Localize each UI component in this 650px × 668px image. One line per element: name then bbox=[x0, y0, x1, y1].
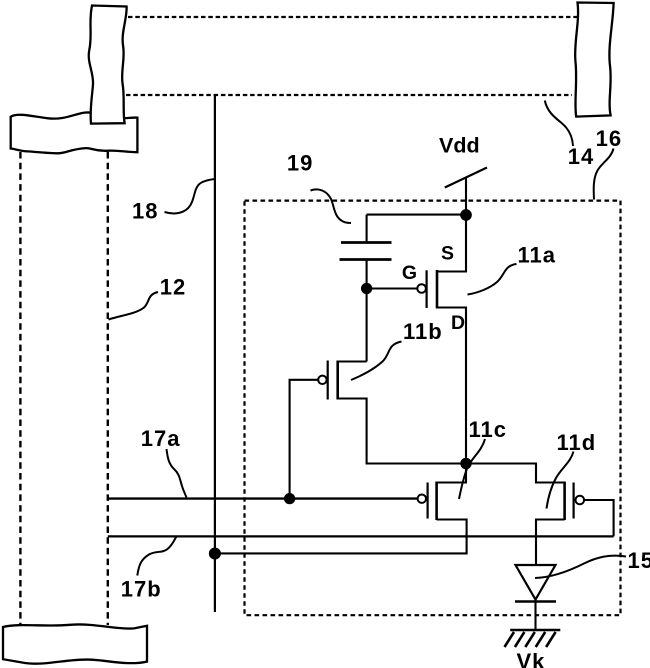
svg-text:14: 14 bbox=[568, 144, 594, 169]
svg-text:11a: 11a bbox=[518, 243, 557, 268]
svg-text:19: 19 bbox=[287, 151, 313, 176]
svg-text:Vk: Vk bbox=[517, 649, 546, 668]
svg-text:17a: 17a bbox=[141, 426, 181, 451]
svg-text:17b: 17b bbox=[121, 577, 162, 602]
svg-text:D: D bbox=[451, 312, 465, 334]
svg-text:16: 16 bbox=[596, 126, 622, 151]
svg-text:S: S bbox=[441, 242, 454, 264]
svg-text:11b: 11b bbox=[403, 319, 443, 344]
svg-text:18: 18 bbox=[132, 199, 158, 224]
svg-text:11c: 11c bbox=[469, 417, 508, 442]
svg-text:G: G bbox=[402, 262, 417, 284]
svg-text:Vdd: Vdd bbox=[439, 134, 480, 158]
svg-text:12: 12 bbox=[160, 275, 186, 300]
svg-text:11d: 11d bbox=[557, 430, 597, 455]
svg-text:15: 15 bbox=[628, 548, 650, 573]
